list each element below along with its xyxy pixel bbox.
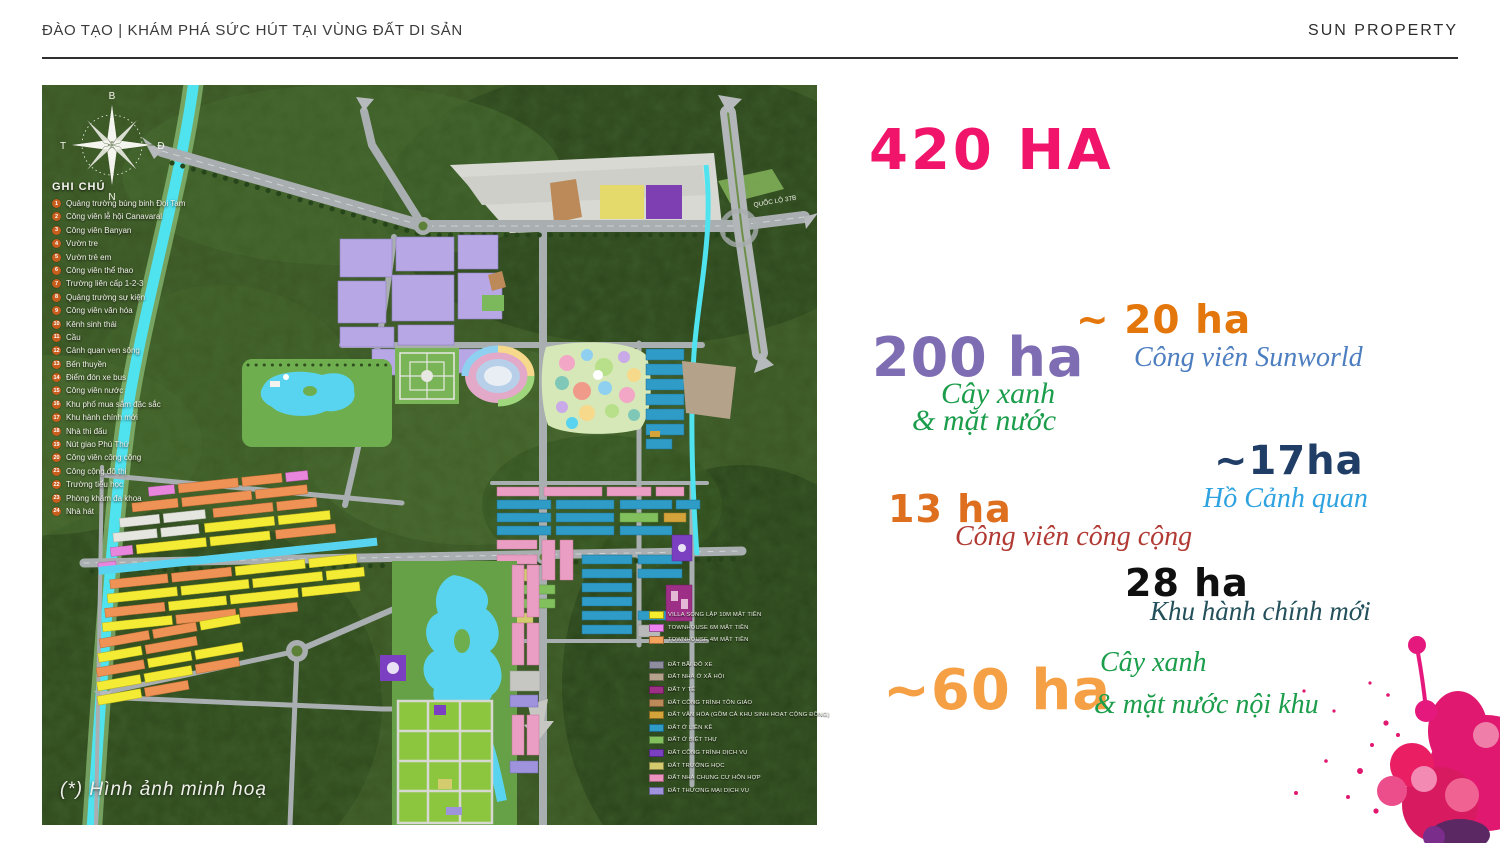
- legend-item: ĐẤT TRƯỜNG HỌC: [649, 762, 817, 770]
- note-item: 5 Vườn trẻ em: [52, 253, 282, 262]
- legend-swatch: [649, 711, 664, 719]
- map-disclaimer: (*) Hình ảnh minh hoạ: [60, 779, 267, 801]
- note-item: 12 Cảnh quan ven sông: [52, 346, 282, 355]
- legend-label: ĐẤT Ở LIỀN KỀ: [668, 725, 713, 731]
- header-divider: [42, 57, 1458, 59]
- stat-total-area: 420 HA: [869, 118, 1114, 183]
- legend-item: ĐẤT Ở BIỆT THỰ: [649, 736, 817, 744]
- note-number-badge: 12: [52, 346, 61, 355]
- legend-label: TOWNHOUSE 4M MẶT TIỀN: [668, 637, 749, 643]
- legend-label: ĐẤT TRƯỜNG HỌC: [668, 763, 725, 769]
- note-label: Nhà hát: [66, 507, 94, 516]
- stat-lake-value: ~17ha: [1214, 438, 1364, 484]
- notes-title: GHI CHÚ: [52, 181, 282, 193]
- note-label: Công viên thể thao: [66, 266, 133, 275]
- legend-swatch: [649, 749, 664, 757]
- stat-lake-label: Hồ Cảnh quan: [1203, 483, 1368, 515]
- note-number-badge: 10: [52, 320, 61, 329]
- legend-swatch: [649, 686, 664, 694]
- note-number-badge: 23: [52, 494, 61, 503]
- note-number-badge: 7: [52, 279, 61, 288]
- legend-label: ĐẤT BÃI ĐỖ XE: [668, 662, 713, 668]
- legend-item: ĐẤT CÔNG TRÌNH DỊCH VỤ: [649, 749, 817, 757]
- note-item: 9 Công viên văn hóa: [52, 306, 282, 315]
- note-item: 20 Công viên công cộng: [52, 453, 282, 462]
- stat-green-water-label-2: & mặt nước: [912, 404, 1056, 438]
- note-item: 16 Khu phố mua sắm đặc sắc: [52, 400, 282, 409]
- note-item: 17 Khu hành chính mới: [52, 413, 282, 422]
- note-item: 21 Công cộng đô thị: [52, 467, 282, 476]
- note-label: Cảnh quan ven sông: [66, 346, 140, 355]
- legend-item: ĐẤT Y TẾ: [649, 686, 817, 694]
- note-item: 3 Công viên Banyan: [52, 226, 282, 235]
- note-label: Bến thuyền: [66, 360, 106, 369]
- note-number-badge: 3: [52, 226, 61, 235]
- note-number-badge: 17: [52, 413, 61, 422]
- legend-swatch: [649, 699, 664, 707]
- legend-swatch: [649, 774, 664, 782]
- legend-label: ĐẤT CÔNG TRÌNH DỊCH VỤ: [668, 750, 748, 756]
- note-item: 19 Nút giao Phú Thứ: [52, 440, 282, 449]
- note-number-badge: 11: [52, 333, 61, 342]
- note-number-badge: 22: [52, 480, 61, 489]
- note-number-badge: 20: [52, 453, 61, 462]
- note-number-badge: 14: [52, 373, 61, 382]
- note-item: 13 Bến thuyền: [52, 360, 282, 369]
- note-item: 18 Nhà thi đấu: [52, 427, 282, 436]
- note-number-badge: 15: [52, 386, 61, 395]
- breadcrumb: ĐÀO TẠO | KHÁM PHÁ SỨC HÚT TẠI VÙNG ĐẤT …: [42, 22, 463, 39]
- legend-swatch: [649, 762, 664, 770]
- note-label: Kênh sinh thái: [66, 320, 117, 329]
- note-number-badge: 18: [52, 427, 61, 436]
- note-label: Nhà thi đấu: [66, 427, 107, 436]
- legend-item: TOWNHOUSE 6M MẶT TIỀN: [649, 624, 817, 632]
- stat-internal-green-label-1: Cây xanh: [1100, 647, 1207, 679]
- legend-label: ĐẤT Ở BIỆT THỰ: [668, 737, 717, 743]
- legend-item: ĐẤT Ở LIỀN KỀ: [649, 724, 817, 732]
- compass-north-label: B: [109, 91, 116, 102]
- brand-label: SUN PROPERTY: [1308, 22, 1458, 40]
- slide: ĐÀO TẠO | KHÁM PHÁ SỨC HÚT TẠI VÙNG ĐẤT …: [0, 0, 1500, 843]
- masterplan-map: B Đ T N QUỐC LỘ 37B GHI CHÚ 1 Quảng trườ…: [42, 85, 817, 825]
- legend-item: ĐẤT CÔNG TRÌNH TÔN GIÁO: [649, 699, 817, 707]
- note-item: 8 Quảng trường sự kiện: [52, 293, 282, 302]
- stadium: [465, 349, 531, 403]
- note-label: Trường liên cấp 1-2-3: [66, 279, 143, 288]
- note-label: Công cộng đô thị: [66, 467, 127, 476]
- note-item: 11 Cầu: [52, 333, 282, 342]
- notes-list: 1 Quảng trường bùng binh Đọi Tam 2 Công …: [52, 199, 282, 516]
- note-label: Công viên công cộng: [66, 453, 141, 462]
- legend-swatch: [649, 673, 664, 681]
- note-label: Công viên lễ hội Canavaral: [66, 212, 162, 221]
- stat-public-park-label: Công viên công cộng: [955, 521, 1192, 553]
- note-label: Công viên Banyan: [66, 226, 131, 235]
- stat-internal-green-value: ~60 ha: [883, 658, 1111, 723]
- note-number-badge: 4: [52, 239, 61, 248]
- note-number-badge: 21: [52, 467, 61, 476]
- legend-swatch: [649, 736, 664, 744]
- note-label: Vườn tre: [66, 239, 98, 248]
- note-label: Trường tiểu học: [66, 480, 123, 489]
- legend-item: ĐẤT BÃI ĐỖ XE: [649, 661, 817, 669]
- legend-item: TOWNHOUSE 4M MẶT TIỀN: [649, 636, 817, 644]
- villa-grid: [398, 701, 492, 823]
- service-parcel: [380, 655, 406, 681]
- note-label: Điểm đón xe bus: [66, 373, 126, 382]
- legend-item: VILLA SONG LẬP 10M MẶT TIỀN: [649, 611, 817, 619]
- legend-swatch: [649, 724, 664, 732]
- legend-label: ĐẤT VĂN HÓA (GỒM CẢ KHU SINH HOẠT CỘNG Đ…: [668, 712, 830, 718]
- map-color-legend: VILLA SONG LẬP 10M MẶT TIỀN TOWNHOUSE 6M…: [649, 611, 817, 799]
- legend-swatch: [649, 787, 664, 795]
- note-number-badge: 8: [52, 293, 61, 302]
- note-item: 4 Vườn tre: [52, 239, 282, 248]
- note-number-badge: 19: [52, 440, 61, 449]
- legend-item: ĐẤT THƯƠNG MẠI DỊCH VỤ: [649, 787, 817, 795]
- note-number-badge: 13: [52, 360, 61, 369]
- map-notes-legend: GHI CHÚ 1 Quảng trường bùng binh Đọi Tam…: [52, 181, 282, 520]
- legend-swatch: [649, 624, 664, 632]
- note-label: Cầu: [66, 333, 81, 342]
- note-label: Quảng trường sự kiện: [66, 293, 145, 302]
- note-number-badge: 2: [52, 212, 61, 221]
- note-label: Công viên văn hóa: [66, 306, 133, 315]
- legend-swatch: [649, 611, 664, 619]
- note-label: Vườn trẻ em: [66, 253, 111, 262]
- note-item: 14 Điểm đón xe bus: [52, 373, 282, 382]
- compass-east-label: Đ: [157, 141, 164, 152]
- legend-label: ĐẤT Y TẾ: [668, 687, 695, 693]
- note-number-badge: 6: [52, 266, 61, 275]
- legend-item: ĐẤT NHÀ CHUNG CƯ HỖN HỢP: [649, 774, 817, 782]
- note-number-badge: 5: [52, 253, 61, 262]
- note-label: Khu phố mua sắm đặc sắc: [66, 400, 161, 409]
- note-label: Nút giao Phú Thứ: [66, 440, 129, 449]
- theme-park: [542, 342, 651, 434]
- legend-item: ĐẤT VĂN HÓA (GỒM CẢ KHU SINH HOẠT CỘNG Đ…: [649, 711, 817, 719]
- legend-label: TOWNHOUSE 6M MẶT TIỀN: [668, 625, 749, 631]
- note-item: 24 Nhà hát: [52, 507, 282, 516]
- note-item: 22 Trường tiểu học: [52, 480, 282, 489]
- social-housing-parcel: [682, 361, 736, 419]
- note-number-badge: 24: [52, 507, 61, 516]
- note-number-badge: 1: [52, 199, 61, 208]
- formal-garden: [395, 348, 459, 404]
- note-item: 6 Công viên thể thao: [52, 266, 282, 275]
- legend-label: ĐẤT CÔNG TRÌNH TÔN GIÁO: [668, 700, 752, 706]
- note-number-badge: 16: [52, 400, 61, 409]
- legend-label: VILLA SONG LẬP 10M MẶT TIỀN: [668, 612, 761, 618]
- stat-sunworld-label: Công viên Sunworld: [1134, 342, 1363, 374]
- legend-label: ĐẤT NHÀ CHUNG CƯ HỖN HỢP: [668, 775, 761, 781]
- legend-landuse: ĐẤT BÃI ĐỖ XE ĐẤT NHÀ Ở XÃ HỘI ĐẤT Y TẾ: [649, 661, 817, 795]
- note-label: Quảng trường bùng binh Đọi Tam: [66, 199, 185, 208]
- legend-swatch: [649, 661, 664, 669]
- note-item: 10 Kênh sinh thái: [52, 320, 282, 329]
- note-number-badge: 9: [52, 306, 61, 315]
- legend-products: VILLA SONG LẬP 10M MẶT TIỀN TOWNHOUSE 6M…: [649, 611, 817, 644]
- legend-item: ĐẤT NHÀ Ở XÃ HỘI: [649, 673, 817, 681]
- note-item: 1 Quảng trường bùng binh Đọi Tam: [52, 199, 282, 208]
- stat-sunworld-value: ~ 20 ha: [1076, 298, 1251, 343]
- note-item: 2 Công viên lễ hội Canavaral: [52, 212, 282, 221]
- legend-swatch: [649, 636, 664, 644]
- compass-west-label: T: [60, 141, 66, 152]
- stat-admin-label: Khu hành chính mới: [1150, 596, 1371, 627]
- note-label: Phòng khám đa khoa: [66, 494, 142, 503]
- blue-rows-north: [646, 349, 684, 449]
- note-label: Khu hành chính mới: [66, 413, 138, 422]
- note-item: 15 Công viên nước: [52, 386, 282, 395]
- note-item: 7 Trường liên cấp 1-2-3: [52, 279, 282, 288]
- legend-label: ĐẤT THƯƠNG MẠI DỊCH VỤ: [668, 788, 749, 794]
- note-item: 23 Phòng khám đa khoa: [52, 494, 282, 503]
- note-label: Công viên nước: [66, 386, 123, 395]
- legend-label: ĐẤT NHÀ Ở XÃ HỘI: [668, 674, 724, 680]
- stat-internal-green-label-2: & mặt nước nội khu: [1094, 689, 1319, 721]
